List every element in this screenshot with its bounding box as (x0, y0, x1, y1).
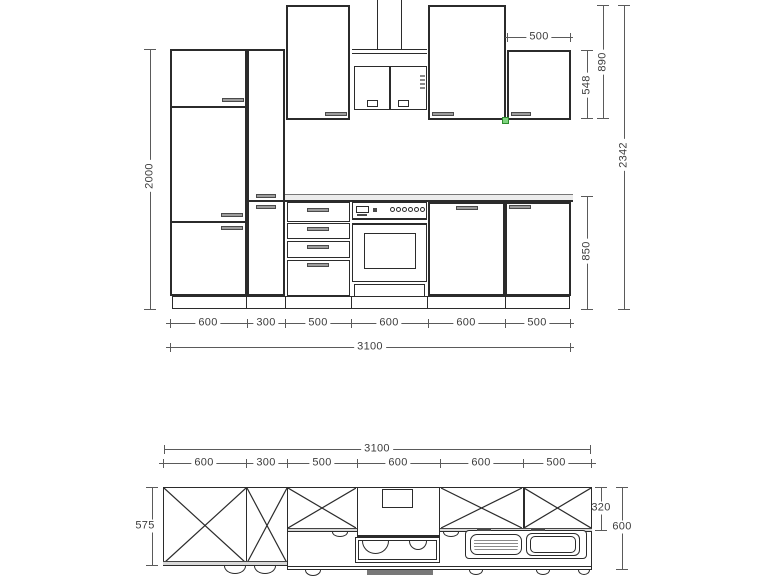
hood-vent-slot (420, 79, 425, 81)
dim-label-850: 850 (581, 238, 594, 263)
hood-vent-slot (420, 83, 425, 85)
dim-tick (170, 343, 171, 352)
dim-tick (164, 445, 165, 454)
plan-door-handle-arc (254, 566, 276, 574)
dim-tick (590, 445, 591, 454)
elevation-view: 2000 500 548 890 2342 850 600 300 (0, 0, 770, 360)
freezer-door-handle (222, 98, 244, 102)
dim-tick (595, 530, 607, 531)
dim-tick (505, 319, 506, 328)
plan-sink-tap (531, 528, 545, 531)
dim-label-890: 890 (597, 49, 610, 74)
plinth-joint (505, 297, 506, 308)
plan-view: 3100 600 300 500 600 600 500 575 320 600 (0, 360, 770, 578)
oven-knob (396, 207, 401, 212)
dim-label-seg: 300 (253, 317, 278, 330)
plan-sink-tap (477, 528, 491, 531)
dim-label-seg: 600 (376, 317, 401, 330)
oven-knob (402, 207, 407, 212)
drawer-1-handle (307, 208, 329, 212)
oven-knob (408, 207, 413, 212)
dim-label-seg: 600 (195, 317, 220, 330)
dim-tick (287, 459, 288, 468)
plinth-joint (246, 297, 247, 308)
base-cabinet-500-handle (509, 205, 531, 209)
dim-label-2342: 2342 (618, 139, 631, 171)
snap-marker (502, 117, 509, 124)
oven-door-window (364, 233, 416, 269)
hood-vent-slot (420, 87, 425, 89)
dim-tick (595, 487, 607, 488)
drawer-1 (287, 202, 350, 222)
plan-cross (164, 488, 246, 563)
plan-dim-label-seg: 300 (253, 457, 278, 470)
plan-door-handle-arc (224, 566, 246, 574)
dim-tick (523, 459, 524, 468)
plinth-joint (351, 297, 352, 308)
dim-tick (616, 569, 628, 570)
wall-cabinet-left-tall (286, 5, 350, 120)
hood-cabinet-door-split (389, 67, 391, 109)
plan-dim-label-600: 600 (609, 521, 634, 534)
dim-tick (507, 33, 508, 42)
dim-tick (351, 319, 352, 328)
dim-tick (163, 459, 164, 468)
hood-cabinet-right-door-handle (398, 100, 409, 107)
plan-wall-cab-600-cross (441, 488, 522, 528)
wall-cabinet-right-short-handle (511, 112, 531, 116)
dim-tick (570, 319, 571, 328)
dim-tick (170, 319, 171, 328)
dim-tick (616, 487, 628, 488)
dim-label-548: 548 (581, 72, 594, 97)
plan-sink-drainer (470, 534, 522, 555)
dim-tick (146, 487, 158, 488)
dim-tick (144, 49, 156, 50)
plan-wall-cab-split (523, 488, 525, 528)
dim-tick (247, 319, 248, 328)
oven-knob (420, 207, 425, 212)
plan-door-handle-arc (469, 570, 483, 575)
dim-label-500-top: 500 (526, 31, 551, 44)
plinth-joint (427, 297, 428, 308)
kitchen-technical-drawing: 2000 500 548 890 2342 850 600 300 (0, 0, 770, 578)
base-cabinet-500 (505, 202, 571, 296)
dim-tick (146, 565, 158, 566)
plan-wall-cab-500-cross (288, 488, 356, 528)
dim-label-seg: 600 (453, 317, 478, 330)
dim-tick (570, 33, 571, 42)
dim-tick (357, 459, 358, 468)
dim-tick (428, 319, 429, 328)
dim-label-seg: 500 (524, 317, 549, 330)
oven-knob (390, 207, 395, 212)
plan-dim-label-seg: 600 (385, 457, 410, 470)
worktop (285, 194, 573, 202)
wall-cabinet-right-tall-handle (432, 112, 454, 116)
drawer-2 (287, 223, 350, 239)
plan-door-handle-arc (578, 570, 590, 575)
plan-dim-label-320: 320 (588, 502, 613, 515)
plan-dim-label-575: 575 (132, 520, 157, 533)
fridge-lower-door (170, 221, 247, 296)
base-cabinet-600-handle (456, 206, 478, 210)
oven-display-tick (357, 214, 367, 216)
dim-tick (597, 5, 609, 6)
plan-hood-duct (382, 489, 413, 508)
plan-dim-label-seg: 500 (543, 457, 568, 470)
plan-door-handle-arc (305, 570, 321, 576)
hood-duct (377, 0, 402, 49)
dim-label-seg: 500 (305, 317, 330, 330)
drawer-3-handle (307, 245, 329, 249)
fridge-door (170, 106, 247, 223)
plan-dim-label-seg: 600 (191, 457, 216, 470)
oven-timer-icon (373, 208, 377, 212)
plan-door-handle-arc (536, 570, 550, 575)
drawer-3 (287, 241, 350, 258)
fridge-door-handle (221, 213, 243, 217)
dim-tick (440, 459, 441, 468)
dim-label-3100: 3100 (354, 341, 386, 354)
wall-cabinet-right-short (507, 50, 571, 120)
dim-tick (618, 309, 630, 310)
wall-cabinet-left-handle (325, 112, 347, 116)
dim-tick (581, 196, 593, 197)
dim-tick (144, 309, 156, 310)
base-cabinet-600 (428, 202, 505, 296)
plan-oven-front-strip (367, 570, 433, 575)
tall-cabinet-upper-door (247, 49, 285, 202)
hood-canopy (352, 49, 427, 54)
dim-line-segments (166, 323, 574, 324)
dim-tick (570, 343, 571, 352)
oven-display-icon (356, 206, 369, 213)
dim-label-2000: 2000 (144, 160, 157, 192)
dim-tick (246, 459, 247, 468)
plan-dim-line-segments (159, 463, 596, 464)
dim-tick (597, 118, 609, 119)
fridge-lower-door-handle (221, 226, 243, 230)
dim-tick (581, 118, 593, 119)
plan-dim-label-3100: 3100 (361, 443, 393, 456)
tall-cabinet-lower-handle (256, 205, 276, 209)
tall-cabinet-upper-handle (256, 194, 276, 198)
plan-sink-bowl-inner (530, 536, 576, 553)
hood-vent-slot (420, 75, 425, 77)
dim-tick (285, 319, 286, 328)
tall-cabinet-lower-door (247, 200, 285, 296)
oven-knob (414, 207, 419, 212)
dim-tick (591, 459, 592, 468)
plinth (172, 296, 570, 309)
dim-tick (581, 309, 593, 310)
plinth-joint (285, 297, 286, 308)
plan-wall-cab-500r-cross (524, 488, 591, 528)
drawer-base-door-handle (307, 263, 329, 267)
drawer-2-handle (307, 227, 329, 231)
plan-worktop-front-edge (288, 566, 591, 567)
dim-tick (581, 50, 593, 51)
plan-dim-label-seg: 500 (309, 457, 334, 470)
plan-cross (247, 488, 287, 563)
dim-tick (618, 5, 630, 6)
wall-cabinet-right-tall (428, 5, 506, 120)
plan-dim-label-seg: 600 (468, 457, 493, 470)
hood-cabinet-left-door-handle (367, 100, 378, 107)
